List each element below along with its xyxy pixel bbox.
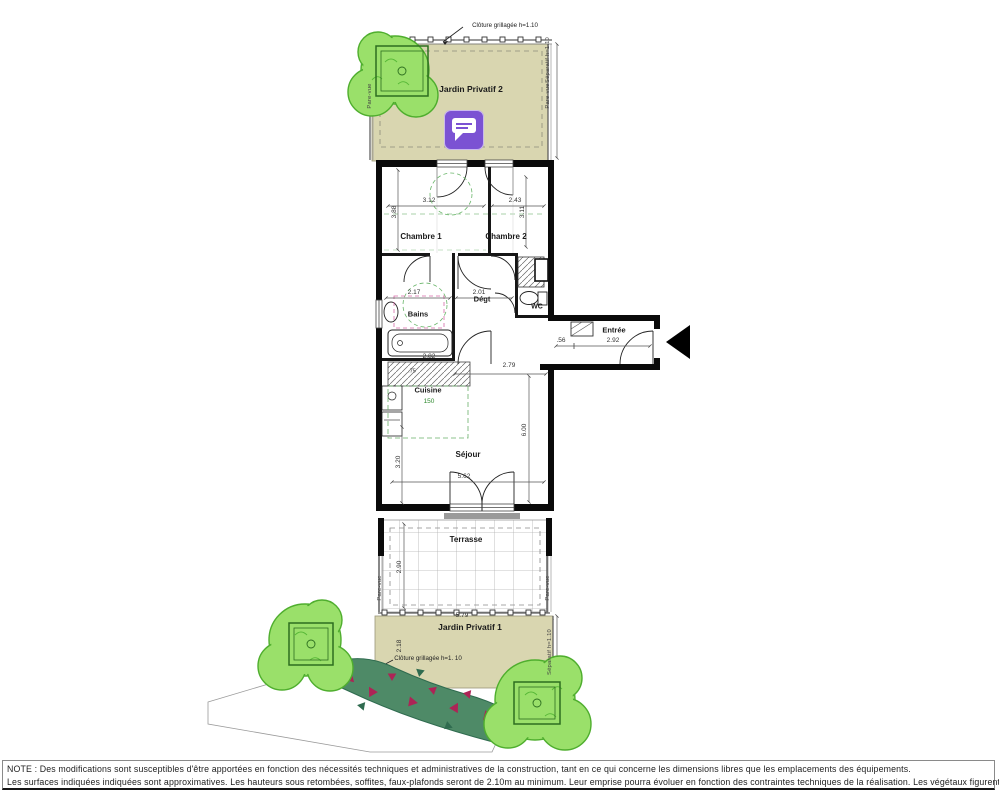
note-line-2: Les surfaces indiquées indiquées sont ap… <box>7 776 990 789</box>
sejour-depth-left-dim: 3.20 <box>396 456 403 469</box>
jardin1-label: Jardin Privatif 1 <box>438 623 502 632</box>
cuisine-dim-b: .75 <box>408 369 416 375</box>
entree-dim-b: 2.92 <box>607 338 620 345</box>
chambre2-width-dim: 2.43 <box>509 198 522 205</box>
entree-dim-a: .56 <box>556 338 565 345</box>
jardin2-separatif-label: Séparatif h=1.10 <box>546 37 552 83</box>
chambre2-depth-dim: 3.11 <box>520 206 527 218</box>
degt-label: Dégt <box>474 295 491 303</box>
terrasse-parevue-right-label: Pare-vue <box>546 575 552 600</box>
bubble-text-line <box>456 123 472 125</box>
chambre1-label: Chambre 1 <box>400 233 441 241</box>
entree-label: Entrée <box>602 326 625 334</box>
wc-label: WC <box>531 304 543 311</box>
speech-bubble-icon <box>452 118 476 133</box>
cuisine-dim-a: 2.82 <box>423 354 436 361</box>
jardin1-width-dim: 5.79 <box>456 613 469 620</box>
fixtures <box>382 292 547 520</box>
chambre1-width-dim: 3.12 <box>423 198 436 205</box>
terrasse-depth-dim: 2.90 <box>397 561 404 574</box>
entrance-arrow-icon <box>666 325 690 359</box>
bains-width-dim: 2.17 <box>408 290 421 297</box>
cuisine-label: Cuisine <box>414 386 441 394</box>
degt-width-dim: 2.01 <box>473 290 486 297</box>
sejour-label: Séjour <box>456 451 481 459</box>
sejour-top-dim: 2.79 <box>503 363 516 370</box>
note-line-1: NOTE : Des modifications sont susceptibl… <box>7 763 990 776</box>
comment-annotation-icon[interactable] <box>444 110 484 150</box>
jardin1-separatif-label: Séparatif h=1.10 <box>548 629 554 675</box>
chambre1-depth-dim: 3.88 <box>392 206 399 219</box>
cuisine-dim-green: 150 <box>424 399 435 406</box>
sejour-width-dim: 5.62 <box>458 474 471 481</box>
bubble-text-line <box>456 127 468 129</box>
terrasse-parevue-left-label: Pare-vue <box>378 575 384 600</box>
bains-label: Bains <box>408 310 428 318</box>
sejour-depth-right-dim: 6.00 <box>522 424 529 437</box>
terrasse-label: Terrasse <box>450 536 483 544</box>
plan-note: NOTE : Des modifications sont susceptibl… <box>2 760 995 790</box>
terrasse-area <box>378 518 552 612</box>
bubble-tail <box>455 132 464 141</box>
chambre2-label: Chambre 2 <box>485 233 526 241</box>
floor-plan-canvas: Clôture grillagée h=1.10 Jardin Privatif… <box>0 0 999 800</box>
jardin2-label: Jardin Privatif 2 <box>439 85 503 94</box>
fence-label-bottom: Clôture grillagée h=1. 10 <box>394 656 462 662</box>
jardin2-parevue-left-label: Pare-vue <box>368 83 374 108</box>
fence-label-top: Clôture grillagée h=1.10 <box>472 23 538 29</box>
floor-plan-drawing <box>0 0 999 800</box>
jardin1-depth-dim: 2.18 <box>397 640 404 653</box>
jardin2-parevue-right-label: Pare-vue <box>546 83 552 108</box>
